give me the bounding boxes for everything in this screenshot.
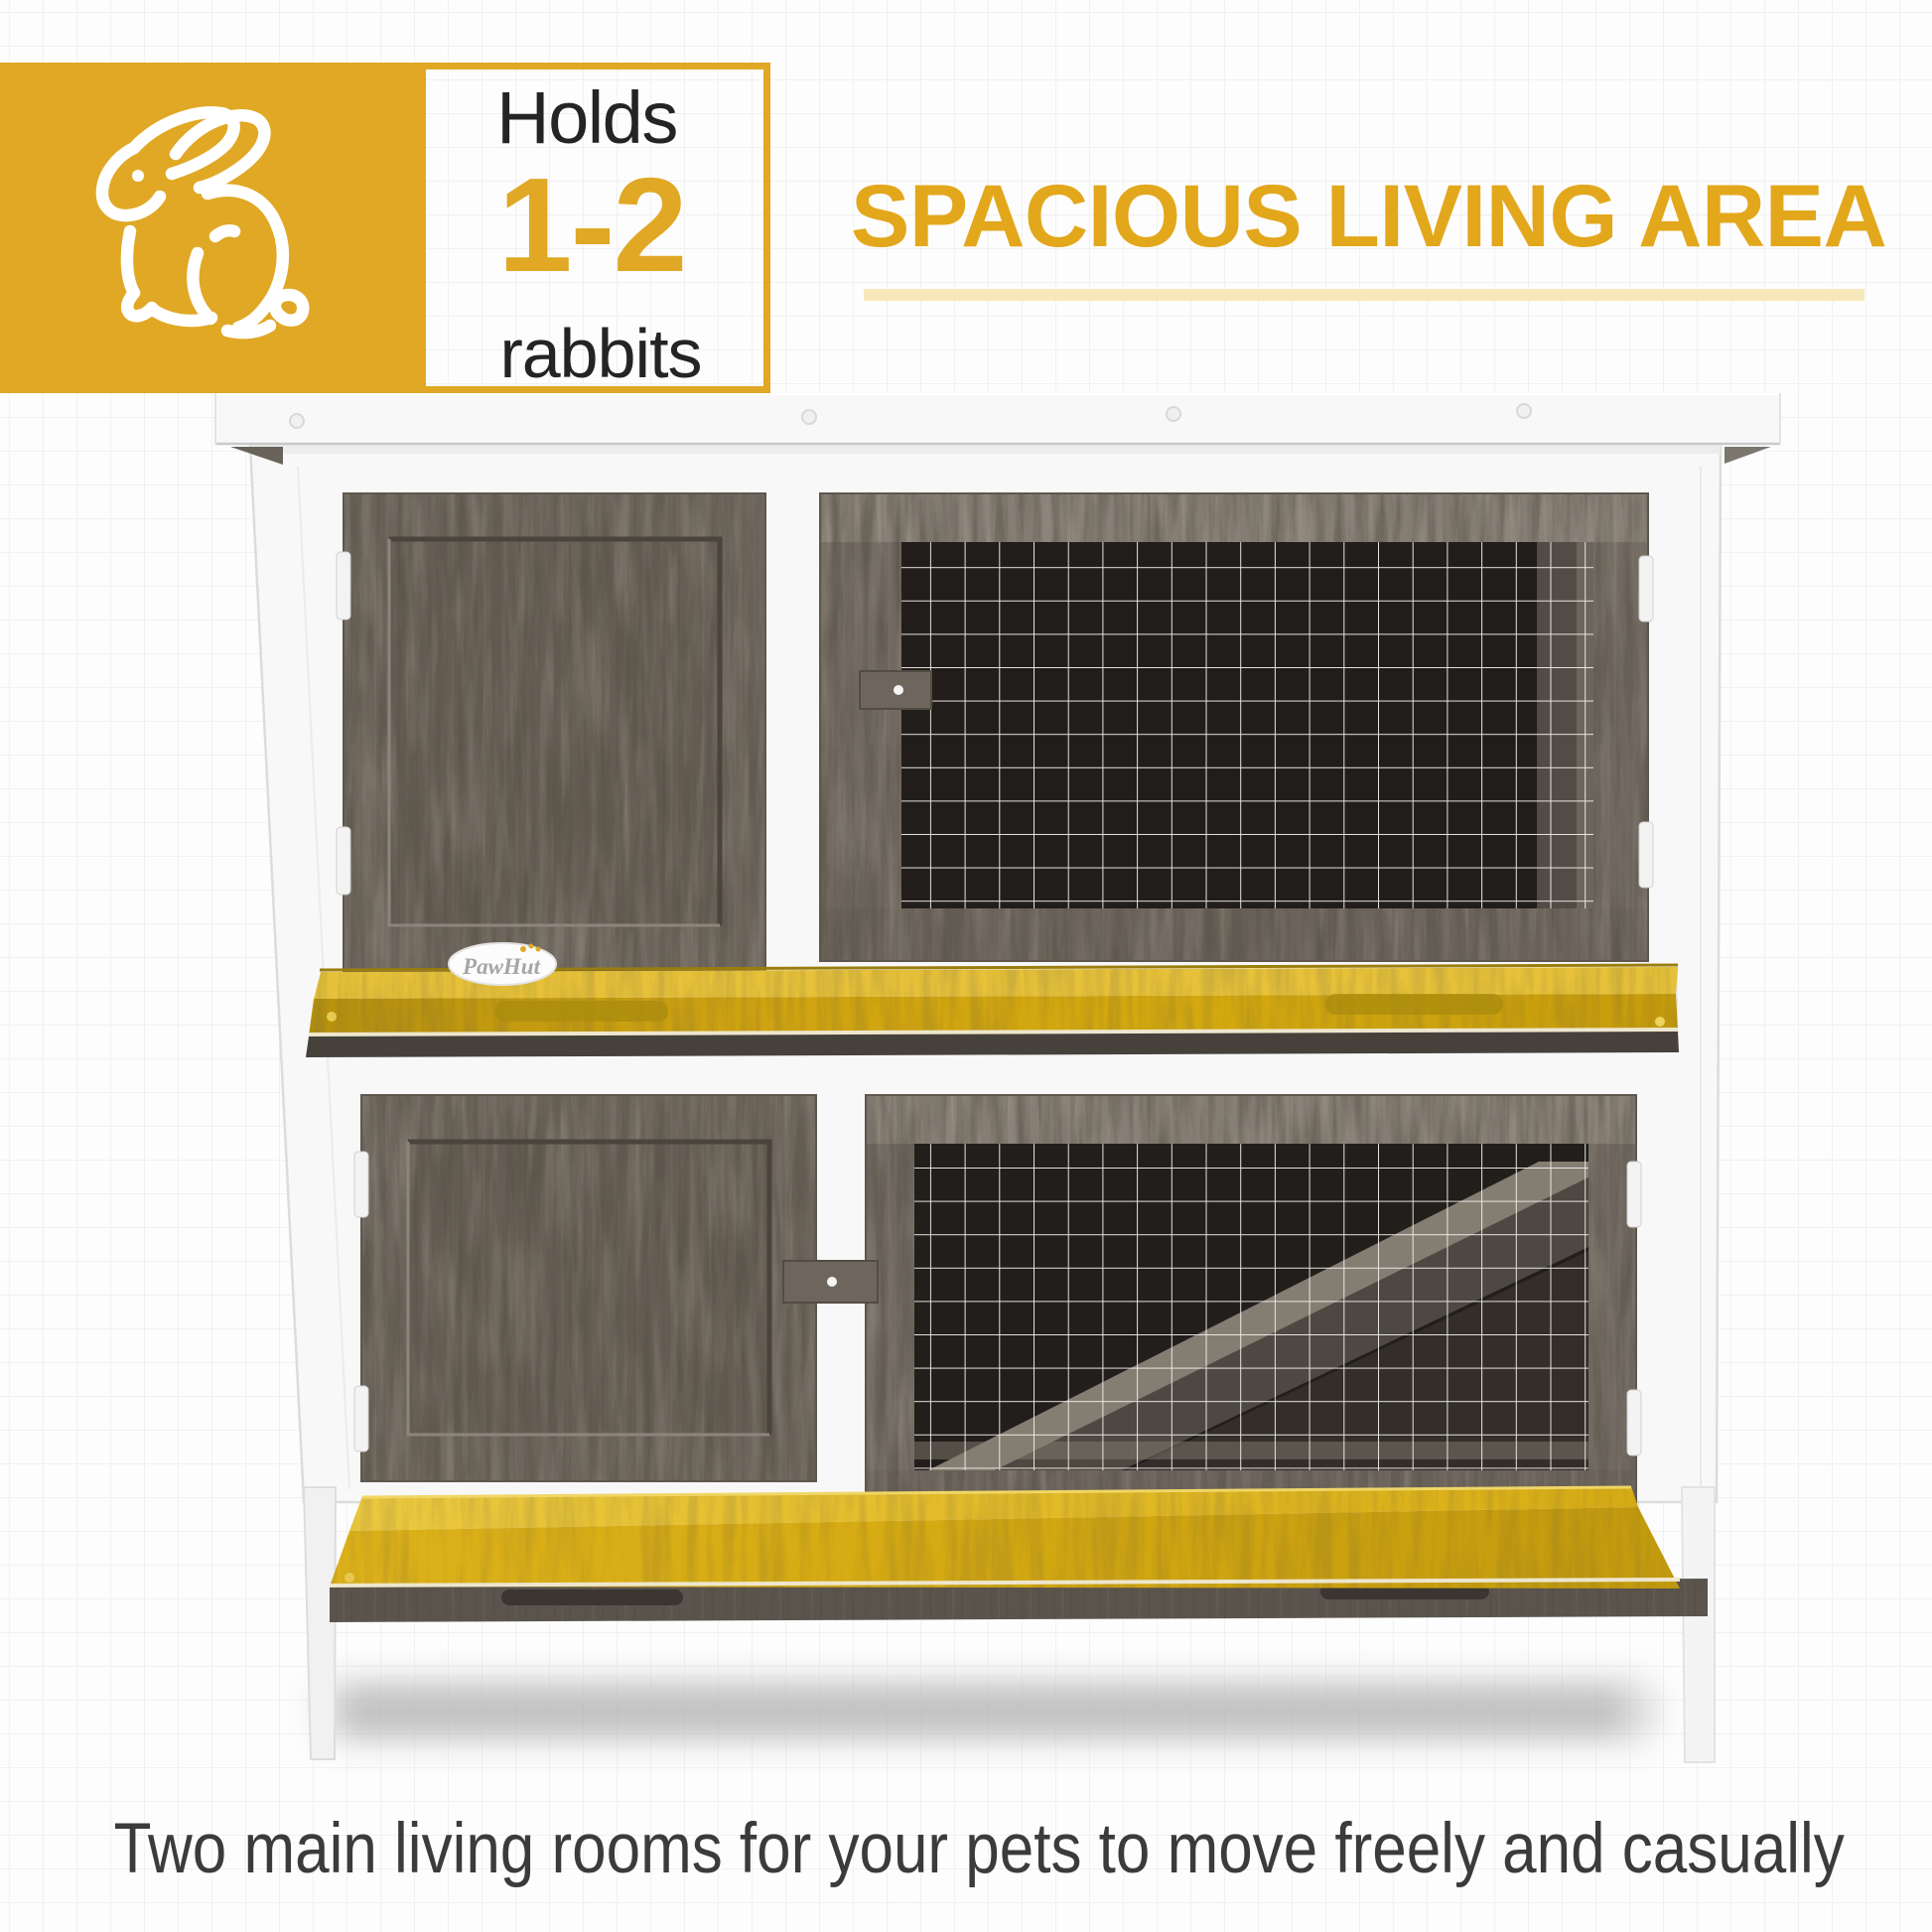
svg-text:PawHut: PawHut <box>462 954 541 979</box>
